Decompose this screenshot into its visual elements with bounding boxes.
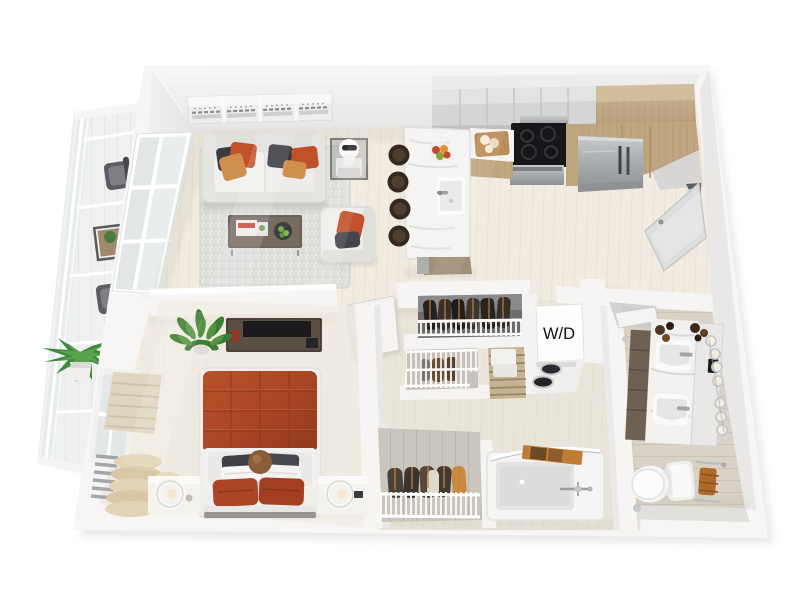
svg-text:W/D: W/D xyxy=(543,325,575,343)
